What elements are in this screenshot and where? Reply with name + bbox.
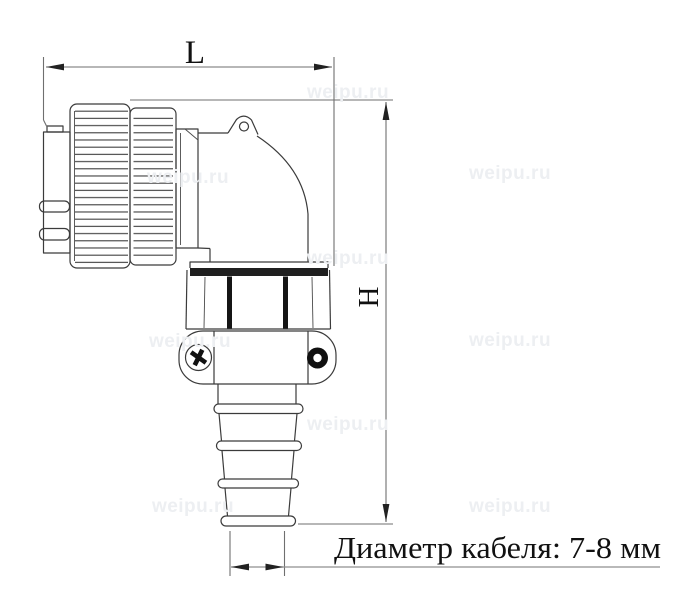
dimension-height-label: H [353, 286, 385, 307]
knurled-ring-1 [70, 104, 130, 268]
watermark: weipu.ru [306, 414, 389, 435]
lug-hole [240, 122, 249, 131]
gland-rib [214, 404, 303, 414]
cable-diameter-note: Диаметр кабеля: 7-8 мм [334, 530, 661, 565]
dimension-cable-diameter: Диаметр кабеля: 7-8 мм [230, 530, 661, 576]
nut-top-band [190, 268, 328, 276]
watermark: weipu.ru [151, 496, 234, 517]
arrow-right-icon [266, 564, 284, 571]
gland-bottom-rim [221, 516, 296, 526]
arrow-down-icon [383, 504, 390, 522]
dimension-length-label: L [185, 35, 205, 71]
technical-drawing-connector: L H Диаметр кабеля: 7-8 мм weipu.ru weip… [0, 0, 697, 605]
arrow-right-icon [314, 64, 332, 71]
watermark: weipu.ru [306, 82, 389, 103]
watermarks: weipu.ru weipu.ru weipu.ru weipu.ru weip… [146, 82, 551, 517]
coupling-nut [186, 268, 331, 329]
arrow-up-icon [383, 102, 390, 120]
gland-rib [217, 441, 302, 451]
collar [176, 129, 198, 248]
watermark: weipu.ru [148, 331, 231, 352]
watermark: weipu.ru [146, 167, 229, 188]
watermark: weipu.ru [468, 496, 551, 517]
watermark: weipu.ru [468, 330, 551, 351]
back-shell [40, 126, 71, 253]
arrow-left-icon [231, 564, 249, 571]
watermark: weipu.ru [306, 248, 389, 269]
watermark: weipu.ru [468, 163, 551, 184]
gland-rib [218, 479, 299, 488]
arrow-left-icon [46, 64, 64, 71]
clamp-screw-hole-icon [307, 348, 328, 369]
page: { "labels": { "dimension_length": "L", "… [0, 0, 697, 605]
mounting-lug [228, 116, 258, 134]
